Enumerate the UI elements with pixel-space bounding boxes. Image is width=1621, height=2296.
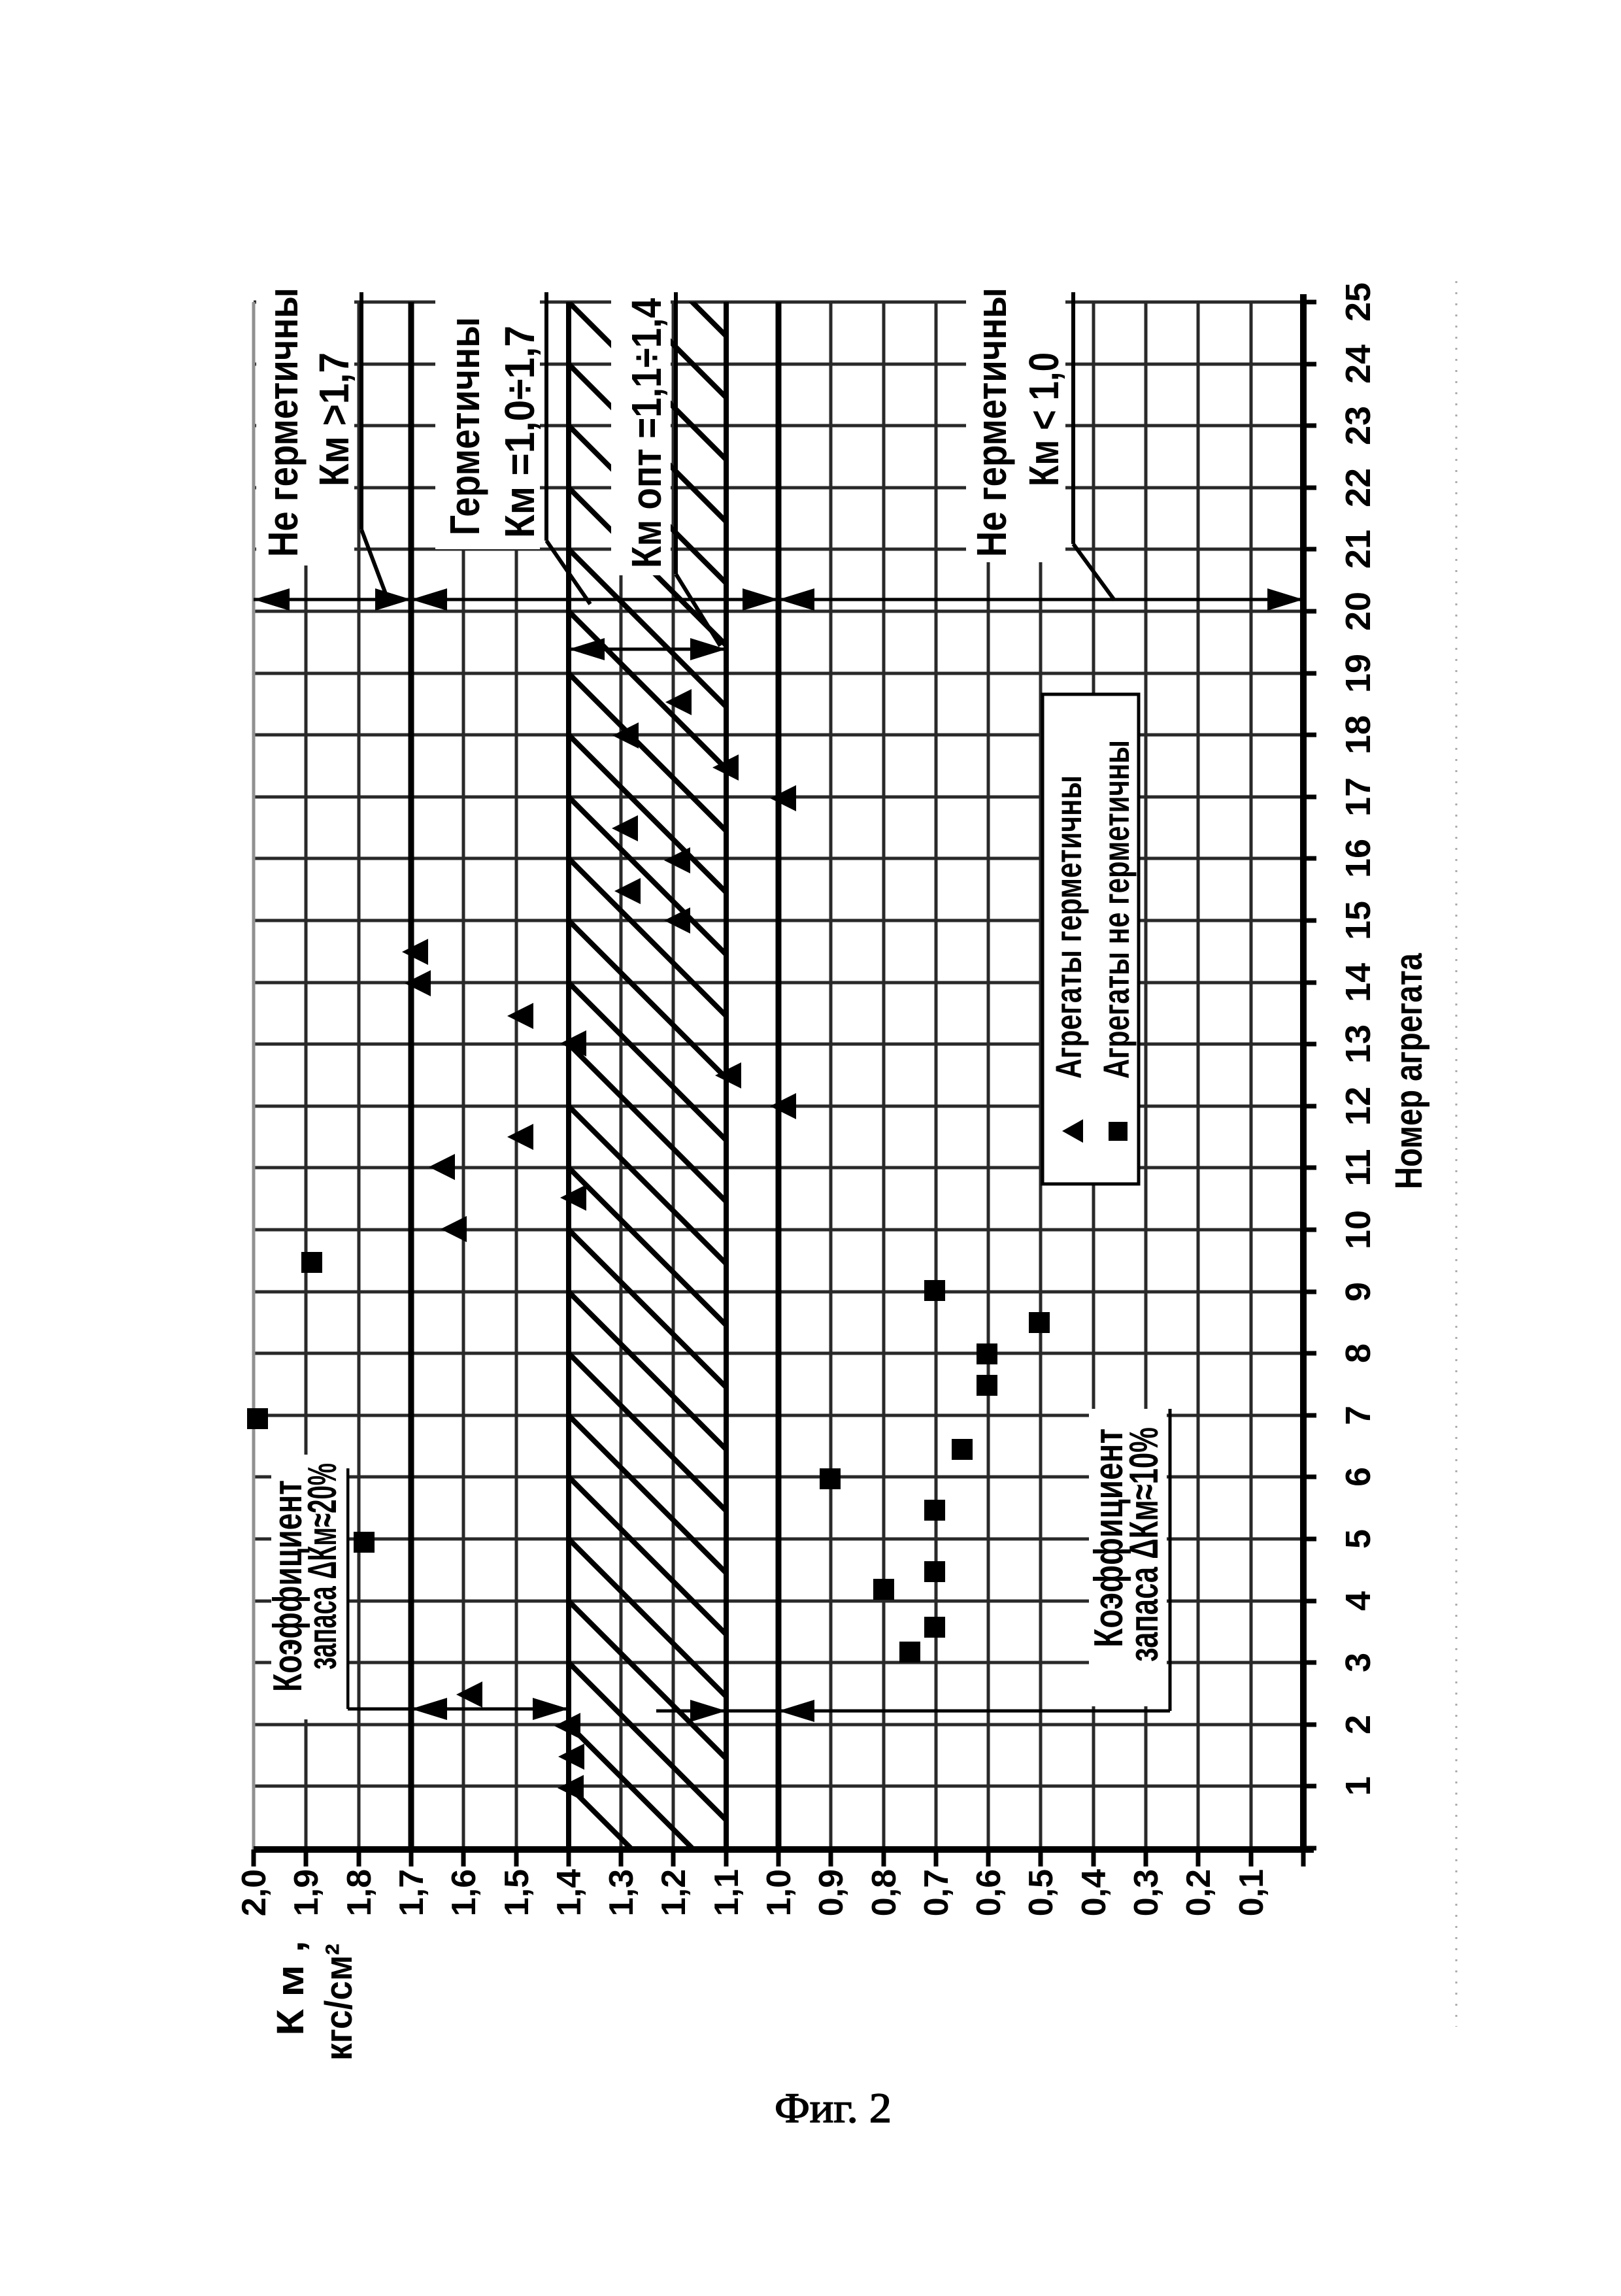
svg-text:23: 23 bbox=[1339, 406, 1378, 445]
svg-text:1,1: 1,1 bbox=[708, 1869, 746, 1916]
svg-text:7: 7 bbox=[1339, 1406, 1378, 1425]
svg-text:запаса ΔКм≈10%: запаса ΔКм≈10% bbox=[1122, 1427, 1167, 1662]
svg-text:1: 1 bbox=[1339, 1776, 1378, 1796]
svg-text:21: 21 bbox=[1339, 530, 1378, 569]
svg-text:0,9: 0,9 bbox=[812, 1869, 850, 1916]
svg-text:15: 15 bbox=[1339, 901, 1378, 940]
svg-text:Номер агрегата: Номер агрегата bbox=[1388, 953, 1430, 1189]
svg-text:0,1: 0,1 bbox=[1233, 1869, 1271, 1916]
svg-text:20: 20 bbox=[1339, 592, 1378, 631]
svg-text:кгс/см²: кгс/см² bbox=[318, 1944, 360, 2061]
svg-text:9: 9 bbox=[1339, 1282, 1378, 1302]
svg-text:1,7: 1,7 bbox=[393, 1869, 431, 1916]
svg-text:Км >1,7: Км >1,7 bbox=[310, 352, 358, 486]
svg-text:Км < 1,0: Км < 1,0 bbox=[1020, 352, 1067, 486]
svg-text:1,4: 1,4 bbox=[550, 1869, 588, 1916]
svg-text:12: 12 bbox=[1339, 1087, 1378, 1126]
svg-text:0,6: 0,6 bbox=[970, 1869, 1008, 1916]
svg-text:Агрегаты не герметичны: Агрегаты не герметичны bbox=[1095, 740, 1137, 1079]
svg-text:К м ,: К м , bbox=[269, 1940, 312, 2036]
svg-text:13: 13 bbox=[1339, 1024, 1378, 1064]
svg-text:6: 6 bbox=[1339, 1467, 1378, 1487]
svg-text:25: 25 bbox=[1339, 282, 1378, 322]
svg-text:0,5: 0,5 bbox=[1022, 1869, 1060, 1916]
svg-text:Км опт =1,1÷1,4: Км опт =1,1÷1,4 bbox=[623, 298, 670, 568]
svg-text:Не герметичны: Не герметичны bbox=[259, 288, 307, 557]
svg-text:0,4: 0,4 bbox=[1075, 1869, 1113, 1916]
svg-text:1,3: 1,3 bbox=[603, 1869, 641, 1916]
svg-text:22: 22 bbox=[1339, 468, 1378, 507]
svg-text:5: 5 bbox=[1339, 1529, 1378, 1549]
svg-text:1,0: 1,0 bbox=[760, 1869, 798, 1916]
svg-text:Герметичны: Герметичны bbox=[441, 317, 488, 535]
svg-text:1,5: 1,5 bbox=[498, 1869, 536, 1916]
svg-text:19: 19 bbox=[1339, 654, 1378, 693]
svg-text:24: 24 bbox=[1339, 345, 1378, 384]
svg-text:2,0: 2,0 bbox=[235, 1869, 273, 1916]
svg-text:Агрегаты герметичны: Агрегаты герметичны bbox=[1048, 775, 1089, 1079]
svg-text:3: 3 bbox=[1339, 1653, 1378, 1672]
svg-text:1,2: 1,2 bbox=[655, 1869, 693, 1916]
svg-text:запаса ΔКм≈20%: запаса ΔКм≈20% bbox=[300, 1463, 345, 1670]
svg-text:1,9: 1,9 bbox=[288, 1869, 326, 1916]
svg-text:10: 10 bbox=[1339, 1210, 1378, 1249]
svg-text:18: 18 bbox=[1339, 715, 1378, 754]
svg-text:0,8: 0,8 bbox=[865, 1869, 903, 1916]
svg-text:17: 17 bbox=[1339, 777, 1378, 817]
svg-text:14: 14 bbox=[1339, 963, 1378, 1002]
svg-text:Км =1,0÷1,7: Км =1,0÷1,7 bbox=[496, 326, 543, 538]
svg-text:Не герметичны: Не герметичны bbox=[968, 288, 1015, 557]
svg-text:0,2: 0,2 bbox=[1180, 1869, 1218, 1916]
svg-text:1,8: 1,8 bbox=[341, 1869, 378, 1916]
svg-text:11: 11 bbox=[1339, 1149, 1378, 1186]
svg-text:2: 2 bbox=[1339, 1715, 1378, 1734]
svg-text:0,3: 0,3 bbox=[1128, 1869, 1165, 1916]
svg-text:8: 8 bbox=[1339, 1343, 1378, 1363]
svg-text:4: 4 bbox=[1339, 1591, 1378, 1611]
svg-text:Фиг. 2: Фиг. 2 bbox=[775, 2085, 892, 2132]
svg-text:1,6: 1,6 bbox=[445, 1869, 483, 1916]
svg-text:16: 16 bbox=[1339, 839, 1378, 878]
svg-text:0,7: 0,7 bbox=[918, 1869, 956, 1916]
